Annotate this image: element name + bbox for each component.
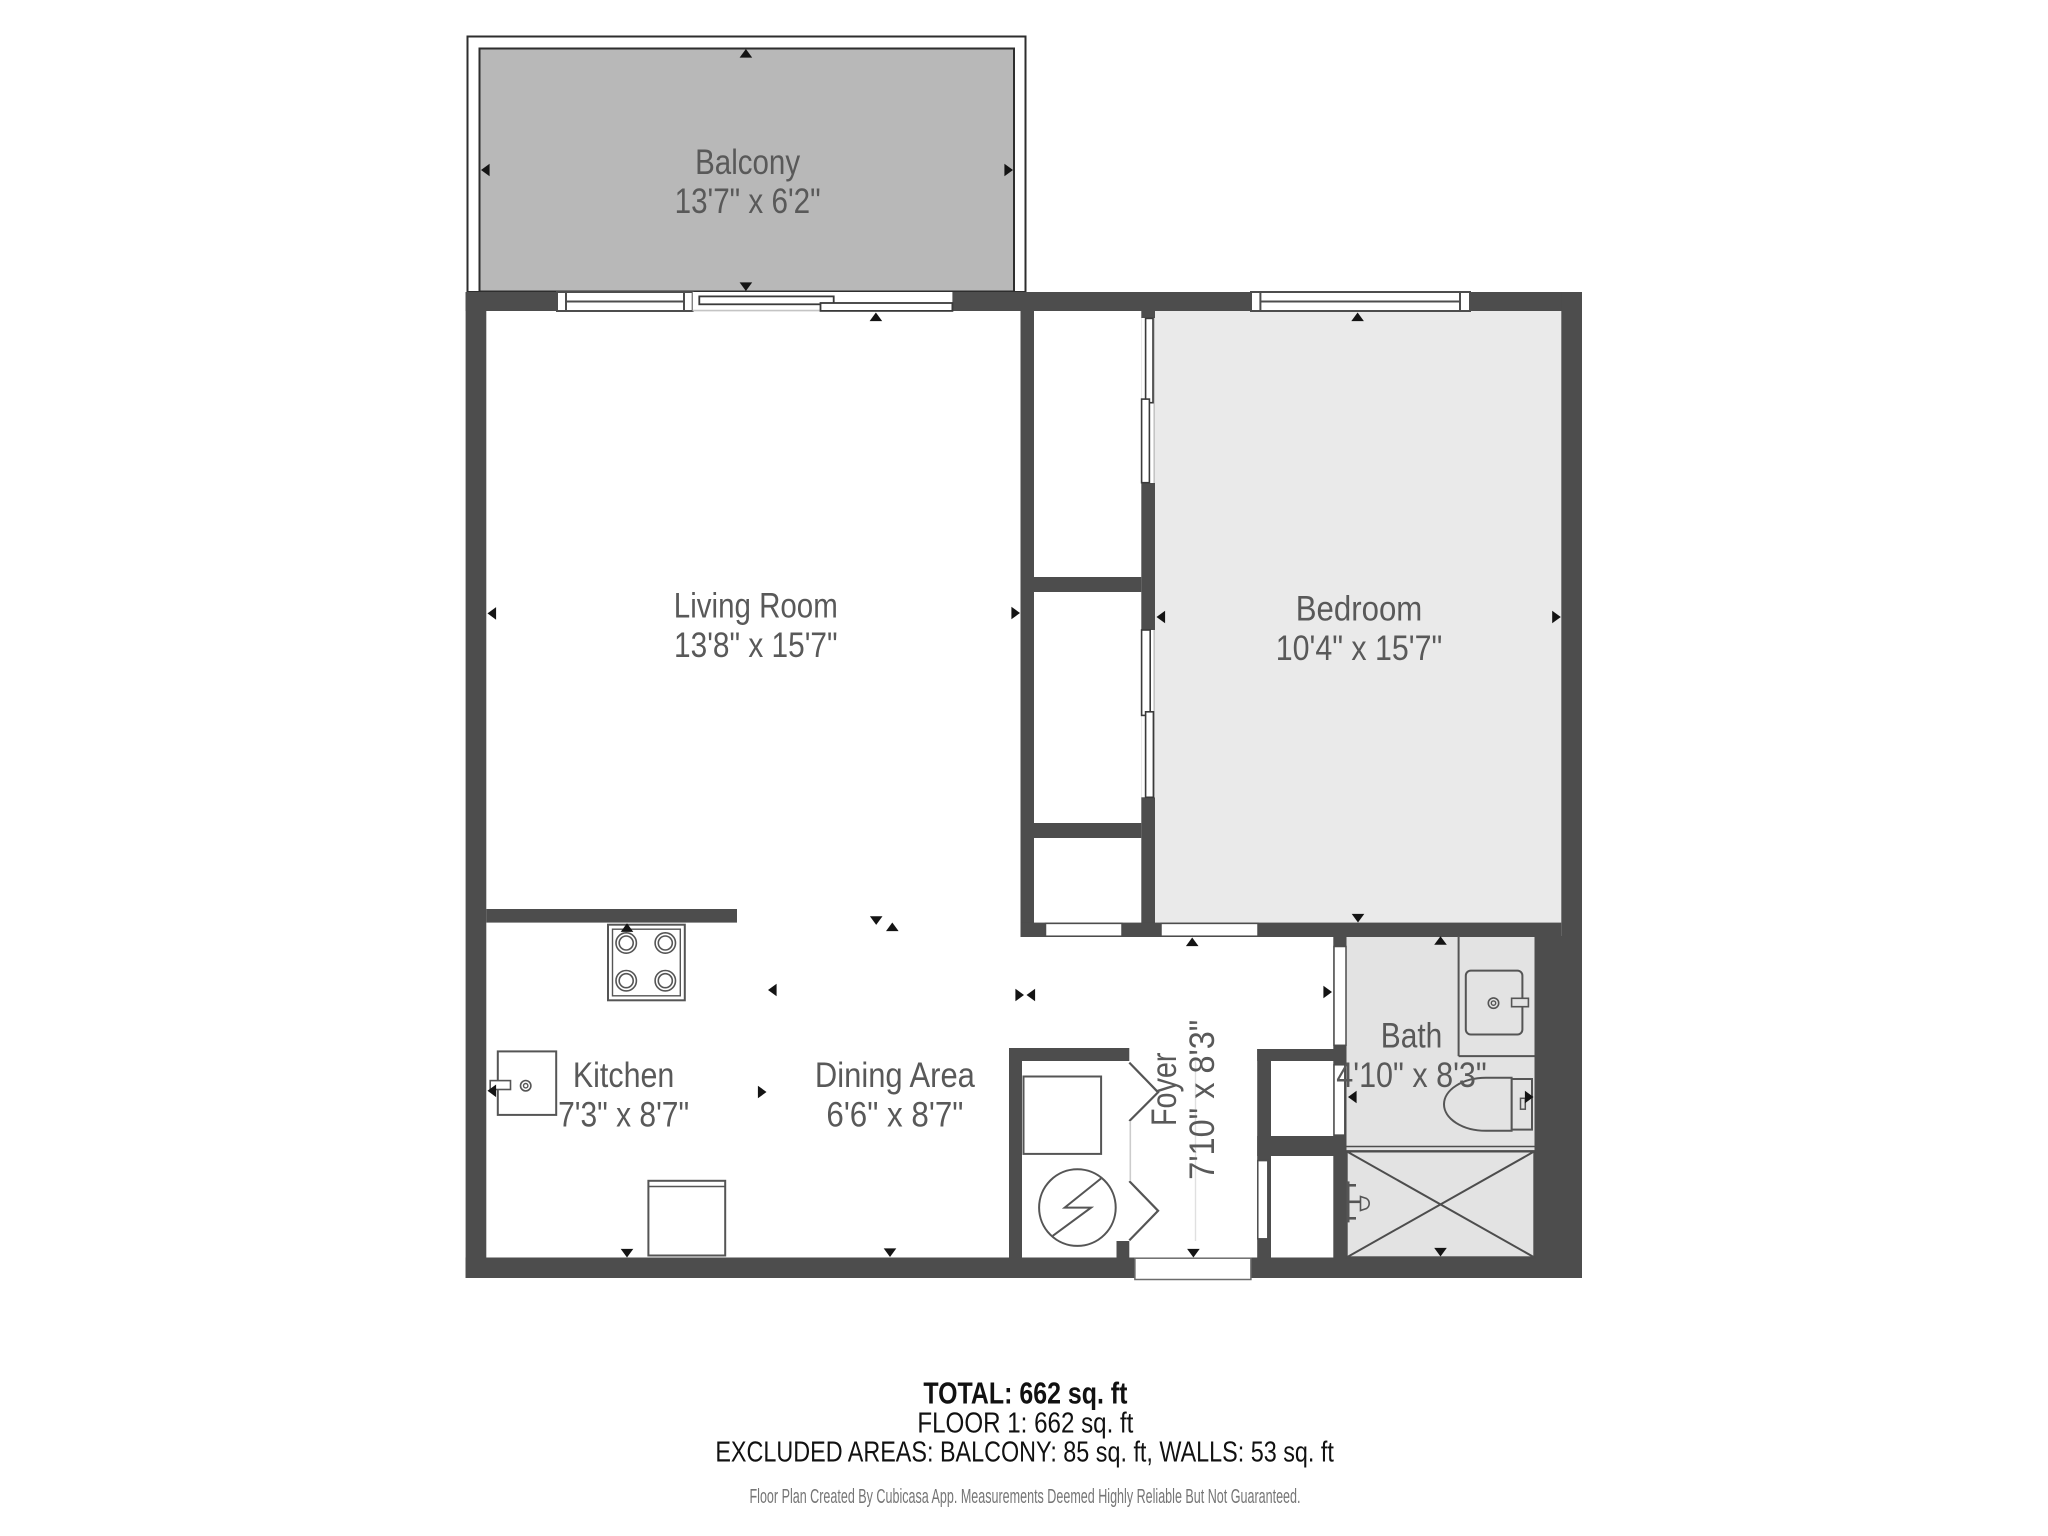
- svg-text:Kitchen: Kitchen: [573, 1055, 675, 1095]
- svg-text:TOTAL: 662 sq. ft: TOTAL: 662 sq. ft: [923, 1376, 1127, 1411]
- svg-text:10'4" x 15'7": 10'4" x 15'7": [1276, 628, 1443, 668]
- svg-text:13'8" x 15'7": 13'8" x 15'7": [674, 625, 838, 665]
- svg-text:Foyer: Foyer: [1144, 1052, 1184, 1126]
- svg-text:4'10" x 8'3": 4'10" x 8'3": [1336, 1055, 1487, 1095]
- svg-text:Balcony: Balcony: [695, 142, 800, 182]
- svg-text:Dining Area: Dining Area: [815, 1055, 975, 1095]
- svg-text:FLOOR 1: 662 sq. ft: FLOOR 1: 662 sq. ft: [917, 1408, 1133, 1440]
- svg-text:EXCLUDED AREAS: BALCONY: 85 sq: EXCLUDED AREAS: BALCONY: 85 sq. ft, WALL…: [715, 1437, 1334, 1469]
- svg-text:13'7" x 6'2": 13'7" x 6'2": [675, 181, 821, 221]
- svg-text:Bath: Bath: [1381, 1016, 1443, 1056]
- svg-text:Living Room: Living Room: [674, 586, 838, 626]
- svg-text:Bedroom: Bedroom: [1296, 589, 1423, 629]
- svg-text:7'3" x 8'7": 7'3" x 8'7": [558, 1094, 689, 1134]
- svg-text:6'6" x 8'7": 6'6" x 8'7": [826, 1094, 963, 1134]
- svg-text:7'10" x 8'3": 7'10" x 8'3": [1182, 1020, 1222, 1180]
- svg-text:Floor Plan Created By Cubicasa: Floor Plan Created By Cubicasa App. Meas…: [750, 1486, 1301, 1508]
